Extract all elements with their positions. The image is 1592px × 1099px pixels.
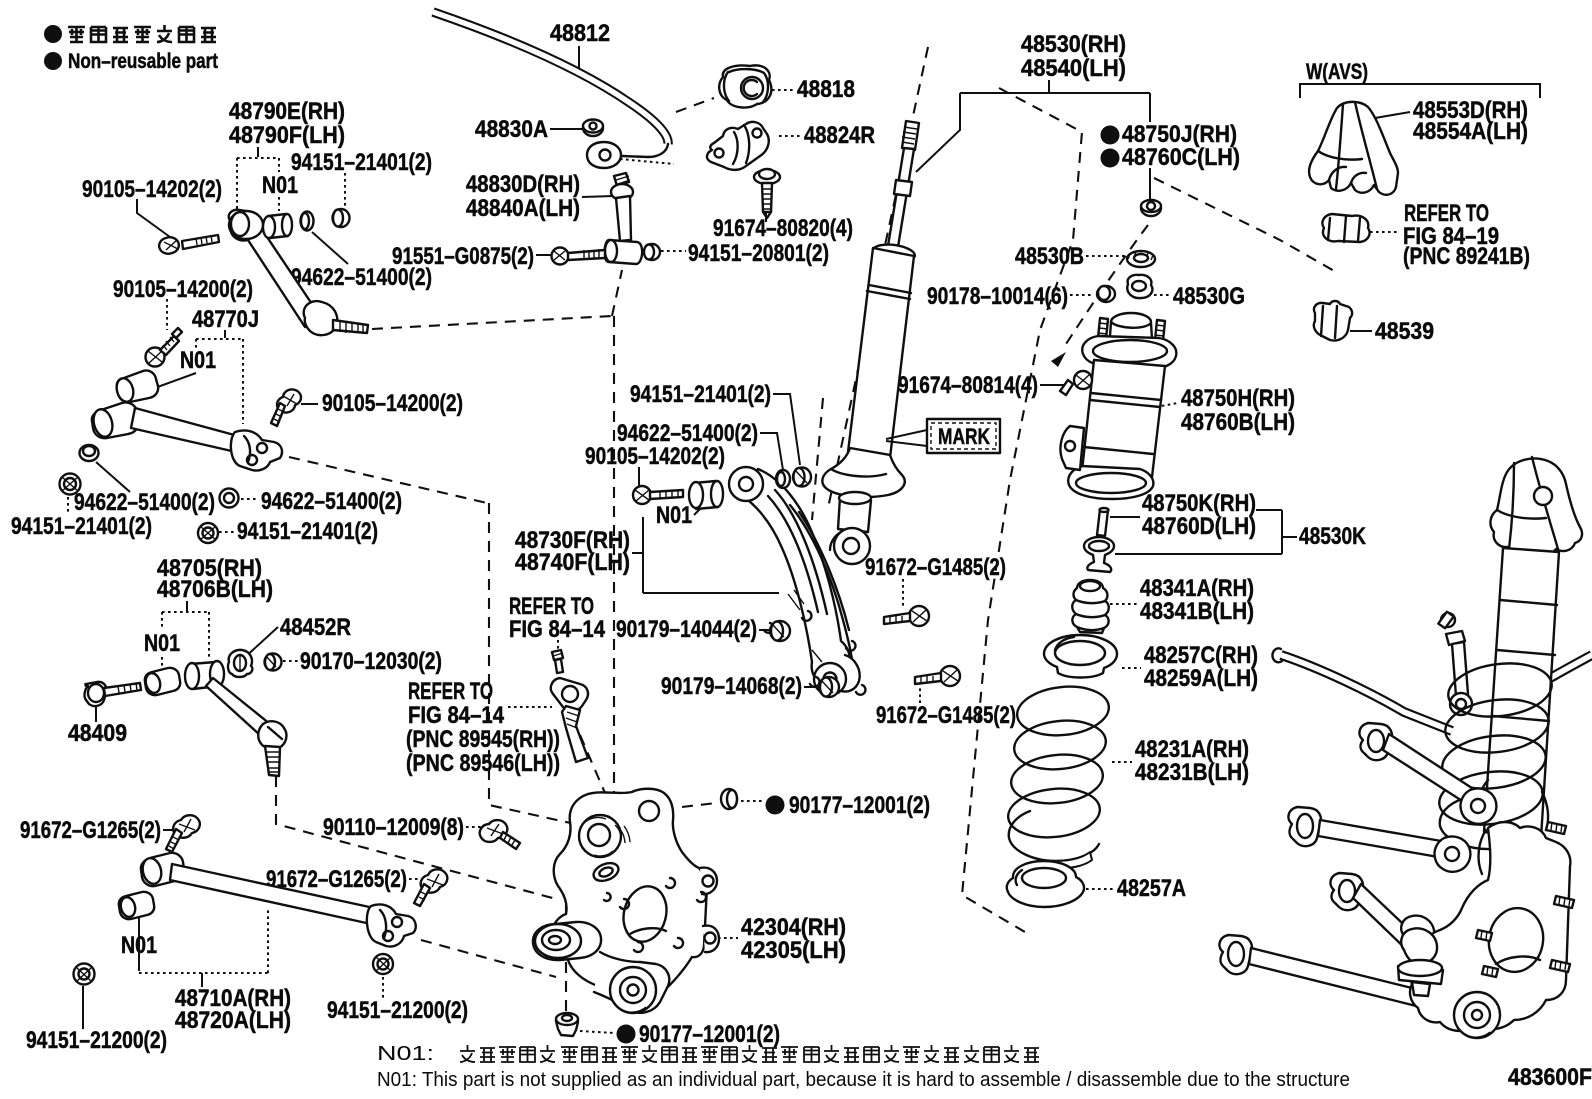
svg-text:90179–14044(2): 90179–14044(2) xyxy=(616,616,757,643)
svg-text:48760B(LH): 48760B(LH) xyxy=(1181,409,1295,436)
svg-text:48790E(RH): 48790E(RH) xyxy=(229,98,345,125)
svg-text:(PNC 89545(RH)): (PNC 89545(RH)) xyxy=(406,726,560,753)
svg-text:48530(RH): 48530(RH) xyxy=(1021,31,1126,58)
svg-text:90105–14202(2): 90105–14202(2) xyxy=(82,176,222,203)
svg-text:W(AVS): W(AVS) xyxy=(1306,59,1368,84)
svg-text:MARK: MARK xyxy=(938,424,990,449)
svg-text:(PNC 89546(LH)): (PNC 89546(LH)) xyxy=(406,750,560,777)
svg-text:N01:: N01: xyxy=(377,1042,434,1065)
svg-text:48231B(LH): 48231B(LH) xyxy=(1135,759,1249,786)
svg-text:48706B(LH): 48706B(LH) xyxy=(157,576,273,603)
svg-text:48770J: 48770J xyxy=(192,306,259,333)
svg-text:48530B: 48530B xyxy=(1015,243,1084,270)
svg-text:48760D(LH): 48760D(LH) xyxy=(1142,513,1256,540)
svg-text:91672–G1265(2): 91672–G1265(2) xyxy=(20,817,161,844)
svg-text:FIG 84–14: FIG 84–14 xyxy=(509,616,606,643)
svg-text:91674–80820(4): 91674–80820(4) xyxy=(713,215,853,242)
svg-text:90105–14200(2): 90105–14200(2) xyxy=(113,276,253,303)
svg-text:N01: N01 xyxy=(656,502,692,529)
svg-text:90110–12009(8): 90110–12009(8) xyxy=(323,814,464,841)
svg-text:42305(LH): 42305(LH) xyxy=(741,937,846,964)
svg-text:N01: N01 xyxy=(262,172,298,199)
svg-text:94151–21401(2): 94151–21401(2) xyxy=(291,149,432,176)
svg-text:91672–G1485(2): 91672–G1485(2) xyxy=(876,702,1016,729)
svg-text:48818: 48818 xyxy=(797,76,855,103)
svg-text:94622–51400(2): 94622–51400(2) xyxy=(291,264,432,291)
svg-text:90170–12030(2): 90170–12030(2) xyxy=(300,648,442,675)
svg-text:48824R: 48824R xyxy=(804,122,875,149)
svg-text:48750H(RH): 48750H(RH) xyxy=(1181,385,1295,412)
svg-text:48830A: 48830A xyxy=(475,116,548,143)
svg-text:48740F(LH): 48740F(LH) xyxy=(515,549,630,576)
svg-text:48720A(LH): 48720A(LH) xyxy=(175,1007,291,1034)
svg-text:N01: N01 xyxy=(144,630,180,657)
svg-text:48539: 48539 xyxy=(1375,318,1434,345)
svg-text:94151–20801(2): 94151–20801(2) xyxy=(688,240,829,267)
svg-text:N01: N01 xyxy=(180,347,216,374)
svg-text:48409: 48409 xyxy=(68,720,127,747)
svg-text:48790F(LH): 48790F(LH) xyxy=(229,122,345,149)
svg-text:94151–21401(2): 94151–21401(2) xyxy=(237,518,378,545)
svg-text:90178–10014(6): 90178–10014(6) xyxy=(927,283,1068,310)
svg-text:48840A(LH): 48840A(LH) xyxy=(466,195,580,222)
svg-text:48760C(LH): 48760C(LH) xyxy=(1122,144,1240,171)
svg-text:94151–21200(2): 94151–21200(2) xyxy=(26,1027,167,1054)
svg-text:483600F: 483600F xyxy=(1508,1064,1592,1091)
svg-text:90177–12001(2): 90177–12001(2) xyxy=(639,1021,780,1048)
svg-text:48259A(LH): 48259A(LH) xyxy=(1144,665,1258,692)
svg-text:48530K: 48530K xyxy=(1299,523,1367,550)
svg-text:48530G: 48530G xyxy=(1173,283,1245,310)
svg-text:REFER TO: REFER TO xyxy=(408,678,493,705)
svg-text:48540(LH): 48540(LH) xyxy=(1021,55,1126,82)
svg-text:90105–14200(2): 90105–14200(2) xyxy=(322,390,463,417)
svg-text:48257A: 48257A xyxy=(1117,875,1186,902)
svg-text:FIG 84–14: FIG 84–14 xyxy=(408,702,505,729)
svg-text:48812: 48812 xyxy=(550,20,610,47)
svg-text:90177–12001(2): 90177–12001(2) xyxy=(789,792,930,819)
svg-text:94151–21200(2): 94151–21200(2) xyxy=(327,997,468,1024)
svg-text:91674–80814(4): 91674–80814(4) xyxy=(898,372,1038,399)
svg-text:48341B(LH): 48341B(LH) xyxy=(1140,598,1254,625)
svg-text:91672–G1485(2): 91672–G1485(2) xyxy=(865,554,1006,581)
svg-text:90179–14068(2): 90179–14068(2) xyxy=(661,673,802,700)
svg-text:94151–21401(2): 94151–21401(2) xyxy=(11,513,152,540)
svg-text:94622–51400(2): 94622–51400(2) xyxy=(74,489,215,516)
svg-text:90105–14202(2): 90105–14202(2) xyxy=(585,443,725,470)
svg-text:(PNC 89241B): (PNC 89241B) xyxy=(1403,243,1530,270)
svg-text:N01: This part is not supplied: N01: This part is not supplied as an ind… xyxy=(377,1068,1350,1091)
svg-text:Non–reusable part: Non–reusable part xyxy=(68,50,218,73)
svg-text:94622–51400(2): 94622–51400(2) xyxy=(261,488,402,515)
svg-text:48554A(LH): 48554A(LH) xyxy=(1413,118,1528,145)
svg-text:94151–21401(2): 94151–21401(2) xyxy=(630,381,771,408)
svg-text:48830D(RH): 48830D(RH) xyxy=(466,171,580,198)
svg-text:48452R: 48452R xyxy=(280,614,351,641)
